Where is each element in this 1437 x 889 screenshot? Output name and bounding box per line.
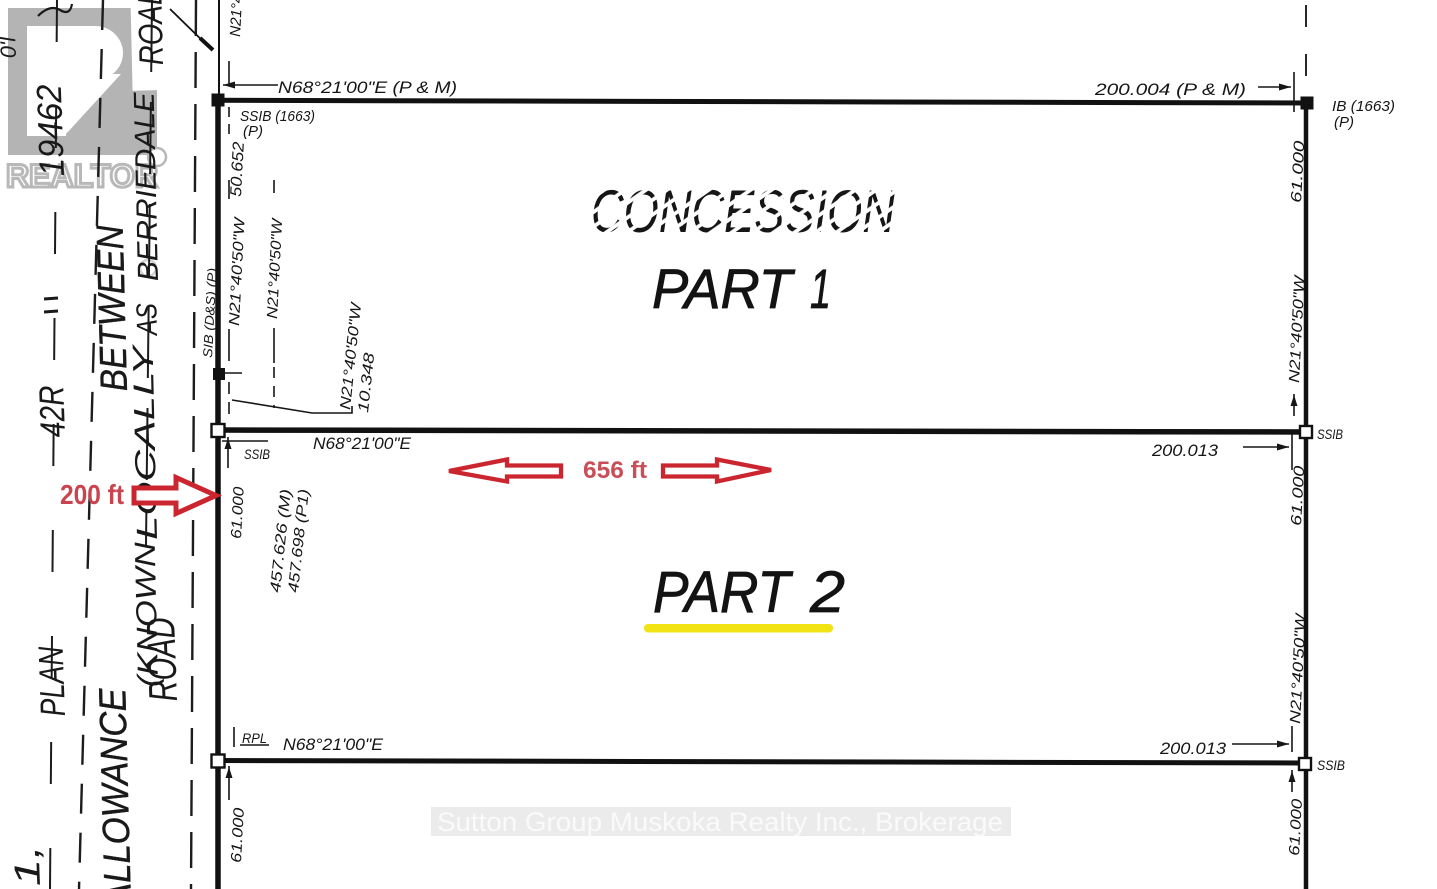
svg-text:(KNOWN: (KNOWN — [130, 542, 165, 688]
svg-text:N68°21'00"E: N68°21'00"E — [283, 735, 384, 754]
svg-text:ALLOWANCE: ALLOWANCE — [92, 687, 140, 889]
svg-text:PLAN: PLAN — [32, 645, 73, 717]
svg-text:200.013: 200.013 — [1151, 441, 1219, 460]
svg-text:(P): (P) — [1334, 114, 1354, 131]
svg-text:N68°21'00"E: N68°21'00"E — [313, 434, 412, 453]
svg-text:SSIB: SSIB — [1317, 757, 1345, 773]
svg-text:61.000: 61.000 — [228, 807, 248, 864]
svg-text:(P): (P) — [243, 123, 263, 140]
svg-text:1,: 1, — [6, 845, 48, 887]
svg-text:BERRIEDALE: BERRIEDALE — [129, 91, 165, 281]
svg-text:SSIB: SSIB — [244, 446, 270, 462]
svg-text:ROAD: ROAD — [131, 0, 171, 66]
svg-text:PART: PART — [652, 257, 796, 320]
svg-text:1: 1 — [810, 257, 831, 320]
svg-text:PART: PART — [653, 560, 793, 625]
svg-text:Sutton Group Muskoka Realty In: Sutton Group Muskoka Realty Inc., Broker… — [437, 807, 1003, 837]
svg-text:IB (1663): IB (1663) — [1332, 98, 1395, 115]
svg-text:200.013: 200.013 — [1159, 739, 1227, 758]
svg-text:61.000: 61.000 — [1288, 465, 1308, 527]
svg-text:N68°21'00"E (P & M): N68°21'00"E (P & M) — [278, 78, 457, 97]
svg-text:61.000: 61.000 — [1288, 140, 1308, 204]
svg-text:LOCALLY: LOCALLY — [128, 342, 164, 541]
svg-text:CONCESSION: CONCESSION — [591, 178, 896, 245]
svg-text:50.652: 50.652 — [228, 141, 248, 197]
svg-text:RPL: RPL — [242, 730, 267, 746]
svg-text:AS: AS — [131, 302, 164, 337]
svg-text:2: 2 — [809, 560, 845, 625]
svg-text:61.000: 61.000 — [228, 486, 248, 540]
svg-text:61.000: 61.000 — [1286, 798, 1306, 857]
svg-text:SSIB: SSIB — [1317, 426, 1343, 442]
svg-text:19462: 19462 — [30, 84, 72, 177]
svg-text:200 ft: 200 ft — [60, 479, 124, 510]
svg-text:42R: 42R — [32, 385, 73, 438]
svg-text:656 ft: 656 ft — [583, 457, 647, 484]
svg-text:200.004 (P & M): 200.004 (P & M) — [1094, 80, 1246, 99]
svg-text:N21°4: N21°4 — [227, 0, 246, 37]
svg-text:0'l: 0'l — [0, 35, 21, 58]
